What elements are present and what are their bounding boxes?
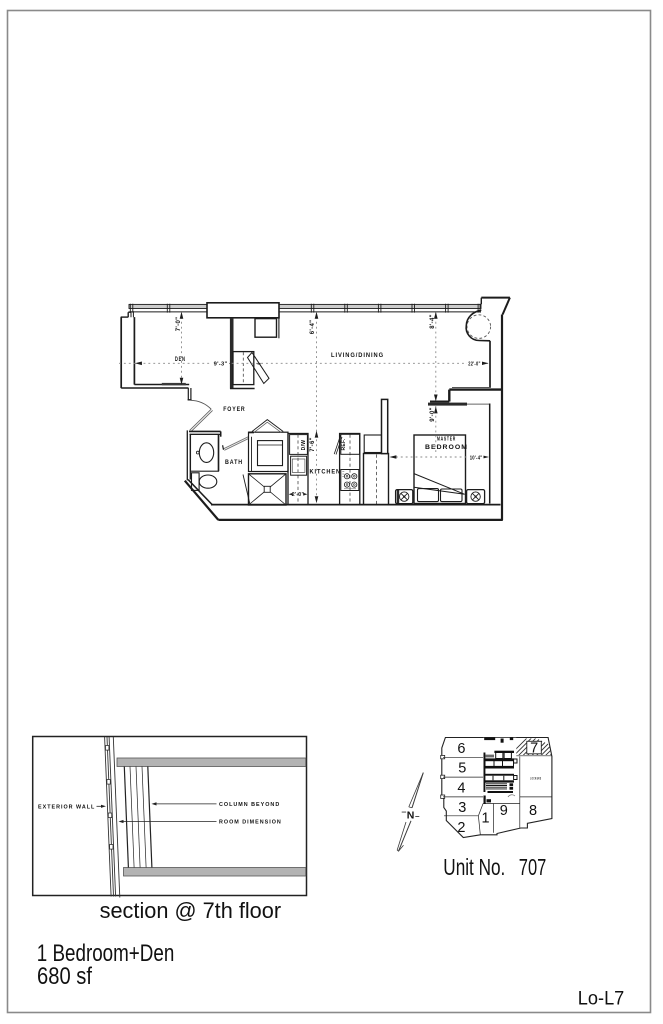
svg-text:9'-0": 9'-0" bbox=[430, 407, 436, 421]
svg-text:MASTER: MASTER bbox=[437, 437, 456, 443]
svg-text:section @ 7th floor: section @ 7th floor bbox=[100, 898, 282, 923]
svg-text:4: 4 bbox=[457, 780, 465, 796]
svg-text:22'-0": 22'-0" bbox=[468, 362, 480, 368]
svg-text:EXTERIOR WALL: EXTERIOR WALL bbox=[38, 804, 95, 810]
svg-text:10'-4": 10'-4" bbox=[470, 456, 483, 462]
svg-text:1: 1 bbox=[481, 810, 489, 826]
svg-text:LIVING/DINING: LIVING/DINING bbox=[331, 352, 384, 359]
svg-text:2: 2 bbox=[457, 820, 465, 836]
svg-text:2'-0": 2'-0" bbox=[292, 492, 305, 498]
svg-text:Lo-L7: Lo-L7 bbox=[578, 988, 625, 1010]
svg-text:FOYER: FOYER bbox=[223, 407, 245, 413]
svg-text:7: 7 bbox=[530, 741, 538, 757]
svg-text:REF.: REF. bbox=[341, 438, 347, 450]
svg-text:COLUMN BEYOND: COLUMN BEYOND bbox=[219, 802, 280, 808]
svg-text:707: 707 bbox=[519, 854, 547, 880]
svg-text:BATH: BATH bbox=[225, 460, 243, 466]
svg-text:7'-0": 7'-0" bbox=[176, 317, 182, 331]
svg-text:D/W: D/W bbox=[301, 440, 307, 451]
svg-text:BEDROOM: BEDROOM bbox=[425, 444, 468, 451]
svg-text:N: N bbox=[407, 810, 415, 822]
svg-text:Unit No.: Unit No. bbox=[443, 854, 505, 880]
svg-text:DEN: DEN bbox=[175, 357, 186, 363]
svg-text:ROOM DIMENSION: ROOM DIMENSION bbox=[219, 820, 282, 826]
svg-text:6'-4": 6'-4" bbox=[310, 320, 316, 334]
svg-text:8: 8 bbox=[529, 803, 537, 819]
svg-text:9: 9 bbox=[500, 803, 508, 819]
svg-text:9'-3": 9'-3" bbox=[214, 362, 228, 368]
svg-text:3: 3 bbox=[458, 800, 466, 816]
svg-text:7'-6": 7'-6" bbox=[310, 437, 316, 451]
svg-text:8'-4": 8'-4" bbox=[430, 314, 436, 328]
svg-text:KITCHEN: KITCHEN bbox=[310, 469, 342, 475]
svg-text:680 sf: 680 sf bbox=[37, 963, 92, 990]
svg-text:LOCKERS: LOCKERS bbox=[530, 777, 541, 781]
svg-text:6: 6 bbox=[457, 741, 465, 757]
svg-text:5: 5 bbox=[458, 761, 466, 777]
